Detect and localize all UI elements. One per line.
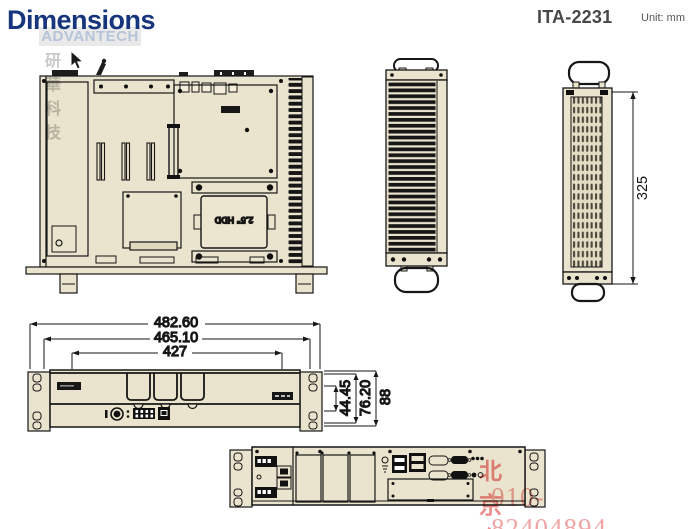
io-module — [409, 453, 426, 472]
side-view-fins-drawing — [386, 59, 447, 292]
rack-ear-left — [230, 450, 252, 507]
led-indicator — [105, 410, 108, 418]
db9-connector-top — [451, 456, 468, 464]
dim-width-inner: 427 — [163, 344, 187, 360]
height-dimension-325: 325 — [612, 92, 651, 284]
dim-side-height: 325 — [635, 176, 651, 200]
handle-bottom — [395, 268, 438, 292]
mouse-cursor-icon — [68, 50, 86, 70]
front-panel — [50, 370, 300, 427]
vendor-phone-watermark: 010-82404894 — [491, 482, 607, 529]
dim-width-overall: 482.60 — [154, 315, 198, 331]
audio-jack-1 — [472, 473, 477, 478]
hdd-label: 2.5" HDD — [214, 215, 253, 225]
handle-top — [569, 62, 609, 84]
rack-ear-left — [28, 372, 50, 431]
mounting-base — [26, 267, 327, 274]
usb-ports — [392, 455, 407, 473]
model-name: ITA-2231 — [537, 7, 612, 28]
vent-grid — [572, 98, 602, 267]
drawings-canvas: 2.5" HDD — [0, 0, 700, 529]
reset-button — [158, 407, 170, 420]
fin-strip — [287, 78, 302, 265]
latch-lever — [96, 62, 106, 75]
dim-height-body: 76.20 — [358, 380, 374, 416]
unit-label: Unit: mm — [641, 12, 685, 24]
datasheet-page: 2.5" HDD — [0, 0, 700, 529]
side-view-vents-drawing — [563, 62, 612, 301]
advantech-cjk-watermark: 研華科技 — [45, 47, 70, 143]
dim-height-overall: 88 — [378, 389, 394, 405]
rack-ear-right — [300, 372, 322, 431]
handle-bottom — [572, 284, 604, 301]
top-view-drawing: 2.5" HDD — [26, 59, 327, 293]
db9-connector-bottom — [451, 471, 468, 479]
page-title: Dimensions — [7, 5, 155, 36]
dim-height-half: 44.45 — [338, 380, 354, 416]
front-view-drawing: 482.60 465.10 427 — [28, 315, 394, 431]
